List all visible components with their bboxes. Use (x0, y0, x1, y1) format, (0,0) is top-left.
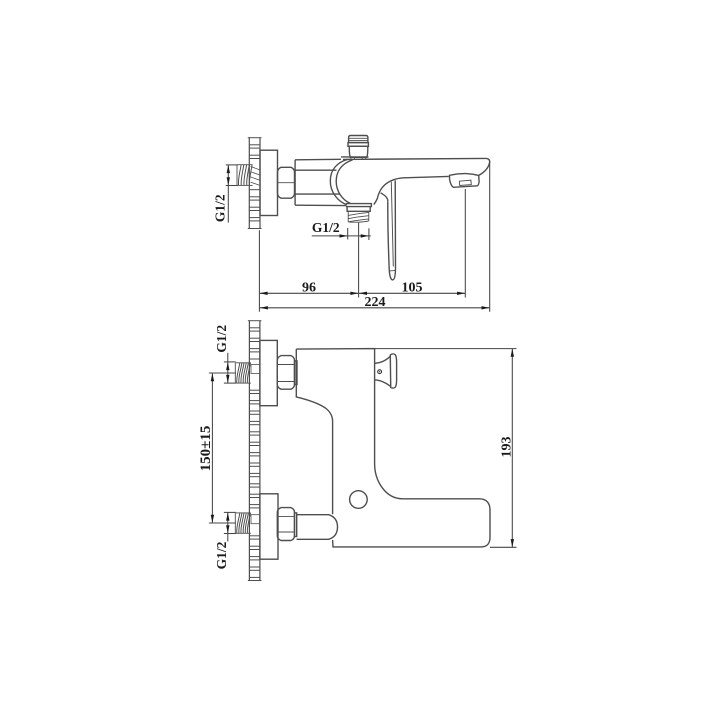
svg-text:105: 105 (402, 281, 423, 296)
svg-text:G1/2: G1/2 (214, 541, 229, 569)
svg-text:224: 224 (365, 295, 386, 310)
svg-text:G1/2: G1/2 (213, 194, 228, 222)
svg-text:G1/2: G1/2 (312, 220, 340, 235)
svg-text:G1/2: G1/2 (214, 325, 229, 353)
svg-text:96: 96 (302, 281, 316, 296)
svg-text:150±15: 150±15 (198, 426, 214, 472)
svg-text:193: 193 (499, 437, 514, 458)
